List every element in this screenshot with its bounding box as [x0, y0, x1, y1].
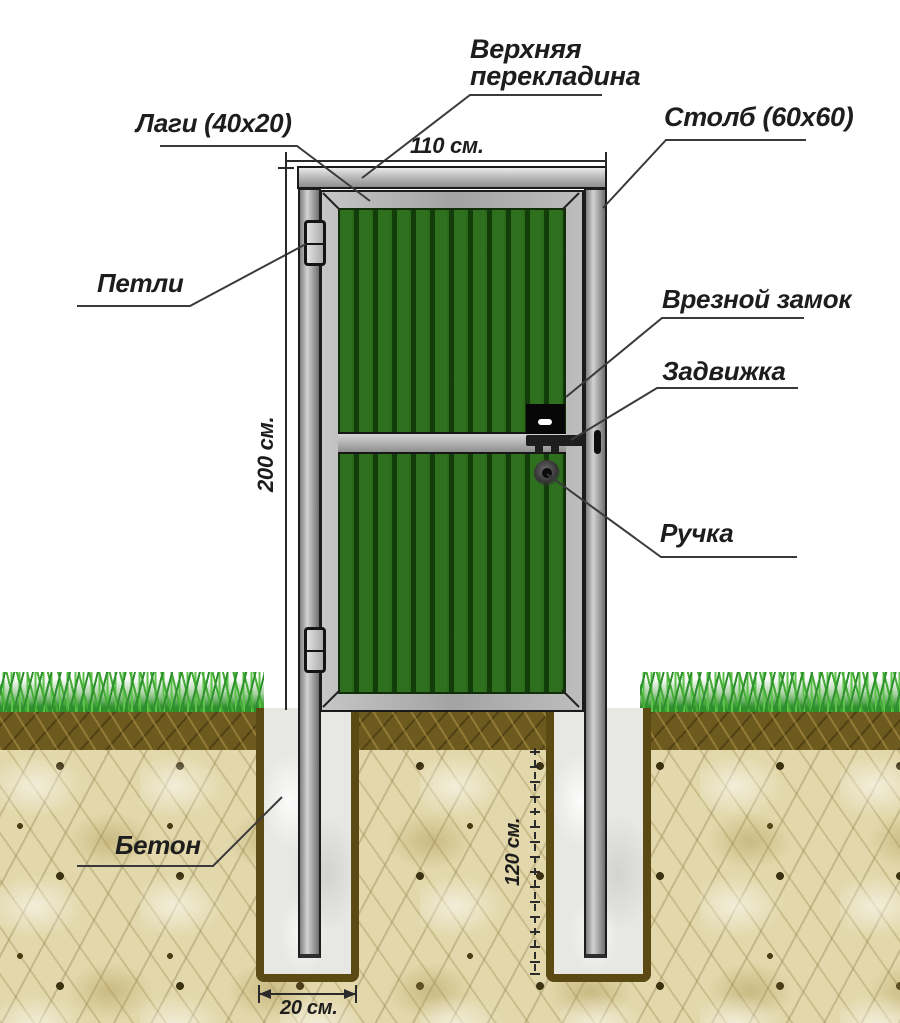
label-top-crossbar: Верхняя перекладина: [470, 36, 640, 90]
topsoil-layer: [0, 710, 900, 750]
dim-gate-height: 200 см.: [252, 396, 279, 492]
hinge-split: [307, 243, 323, 245]
post-left: [298, 188, 321, 958]
dim-hole-depth: 120 см.: [500, 806, 527, 886]
latch-tab: [535, 445, 543, 453]
latch-bolt: [526, 435, 584, 446]
strike-plate-icon: [594, 430, 601, 454]
label-latch: Задвижка: [662, 358, 786, 385]
gate-frame: [320, 190, 584, 712]
hinge-lower: [304, 627, 326, 673]
label-handle: Ручка: [660, 520, 733, 547]
grass-right: [640, 672, 900, 712]
top-crossbar: [297, 166, 607, 189]
lock-slot: [538, 419, 552, 425]
hinge-split: [307, 650, 323, 652]
label-concrete: Бетон: [115, 832, 201, 859]
subsoil-layer: [0, 746, 900, 1023]
label-lags: Лаги (40x20): [136, 110, 292, 137]
latch-tab: [551, 445, 559, 453]
label-hinges: Петли: [97, 270, 184, 297]
dim-hole-width: 20 см.: [280, 995, 337, 1022]
label-mortise-lock: Врезной замок: [662, 286, 851, 313]
label-post: Столб (60x60): [664, 104, 853, 131]
handle-center: [542, 468, 552, 478]
post-right: [584, 188, 607, 958]
gate-installation-diagram: Верхняя перекладина Лаги (40x20) Столб (…: [0, 0, 900, 1023]
hinge-upper: [304, 220, 326, 266]
handle-knob: [534, 460, 560, 486]
grass-left: [0, 672, 264, 712]
mortise-lock: [526, 404, 565, 434]
dim-gate-width: 110 см.: [410, 132, 484, 159]
